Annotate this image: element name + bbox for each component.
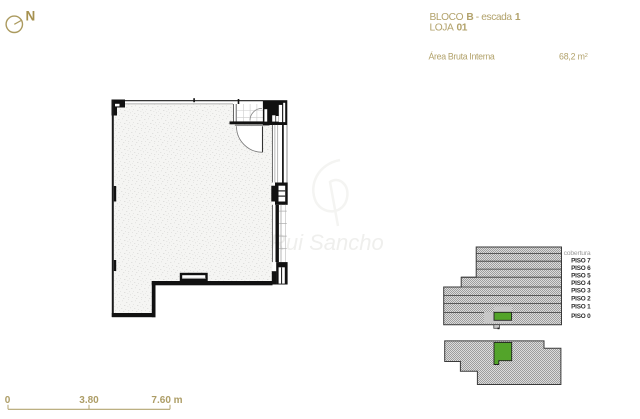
svg-text:cobertura: cobertura <box>564 250 591 257</box>
svg-text:PISO 2: PISO 2 <box>571 296 591 303</box>
svg-text:68,2 m2: 68,2 m2 <box>559 52 588 62</box>
svg-text:3.80: 3.80 <box>79 395 99 406</box>
svg-text:PISO 5: PISO 5 <box>571 272 591 279</box>
svg-text:PISO 6: PISO 6 <box>571 265 591 272</box>
svg-text:Área Bruta Interna: Área Bruta Interna <box>429 52 495 62</box>
svg-text:N: N <box>26 9 36 24</box>
svg-text:PISO 7: PISO 7 <box>571 258 591 265</box>
svg-text:PISO 3: PISO 3 <box>571 288 591 295</box>
svg-text:0: 0 <box>5 395 11 406</box>
svg-text:PISO 4: PISO 4 <box>571 280 591 287</box>
svg-text:BLOCO B - escada 1: BLOCO B - escada 1 <box>430 12 521 23</box>
svg-text:PISO 1: PISO 1 <box>571 304 591 311</box>
svg-text:7.60 m: 7.60 m <box>151 395 182 406</box>
svg-text:Rui Sancho: Rui Sancho <box>270 230 384 255</box>
svg-text:PISO 0: PISO 0 <box>571 313 591 320</box>
svg-text:LOJA 01: LOJA 01 <box>430 23 468 34</box>
